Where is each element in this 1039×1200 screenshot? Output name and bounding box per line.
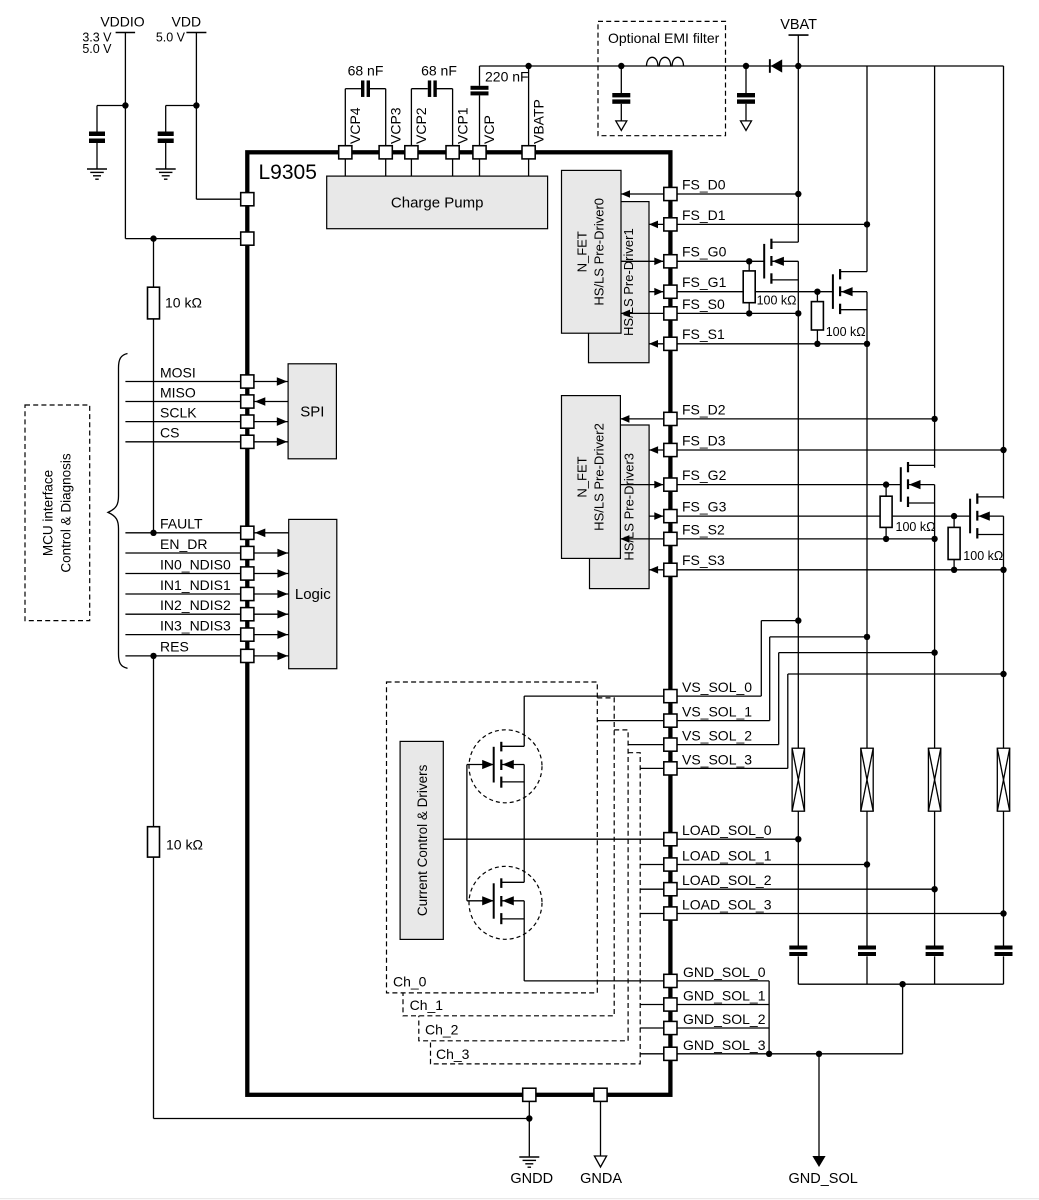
svg-text:VS_SOL_0: VS_SOL_0 — [682, 679, 752, 695]
svg-text:VBATP: VBATP — [530, 99, 546, 144]
svg-text:FS_D3: FS_D3 — [682, 432, 726, 448]
svg-text:HS/LS Pre-Driver0: HS/LS Pre-Driver0 — [592, 198, 607, 306]
svg-text:FS_D0: FS_D0 — [682, 176, 726, 192]
svg-text:5.0 V: 5.0 V — [82, 42, 112, 56]
svg-text:100 kΩ: 100 kΩ — [896, 520, 936, 534]
svg-text:FS_S1: FS_S1 — [682, 326, 725, 342]
svg-text:Ch_2: Ch_2 — [425, 1022, 459, 1038]
svg-text:HS/LS Pre-Driver1: HS/LS Pre-Driver1 — [621, 228, 636, 336]
svg-text:100 kΩ: 100 kΩ — [757, 294, 797, 308]
svg-text:CS: CS — [160, 425, 179, 441]
svg-text:FS_D2: FS_D2 — [682, 401, 726, 417]
svg-text:N_FET: N_FET — [575, 231, 590, 272]
svg-text:GND_SOL: GND_SOL — [789, 1171, 858, 1187]
svg-text:Ch_1: Ch_1 — [410, 997, 444, 1013]
svg-text:Current Control & Drivers: Current Control & Drivers — [415, 764, 430, 916]
svg-text:FS_G3: FS_G3 — [682, 499, 727, 515]
svg-text:VBAT: VBAT — [780, 17, 817, 33]
svg-text:Ch_0: Ch_0 — [393, 974, 427, 990]
svg-text:VCP1: VCP1 — [454, 107, 470, 144]
svg-text:VDD: VDD — [172, 14, 202, 30]
svg-text:68 nF: 68 nF — [348, 63, 384, 79]
svg-text:VS_SOL_2: VS_SOL_2 — [682, 728, 752, 744]
svg-text:MISO: MISO — [160, 384, 196, 400]
svg-text:220 nF: 220 nF — [485, 69, 529, 85]
svg-text:MCU interface: MCU interface — [40, 470, 55, 556]
svg-text:RES: RES — [160, 639, 189, 655]
svg-text:GND_SOL_3: GND_SOL_3 — [683, 1037, 766, 1053]
svg-text:HS/LS Pre-Driver2: HS/LS Pre-Driver2 — [592, 423, 607, 531]
svg-text:IN2_NDIS2: IN2_NDIS2 — [160, 597, 231, 613]
svg-text:10 kΩ: 10 kΩ — [165, 295, 202, 311]
svg-text:VCP3: VCP3 — [387, 107, 403, 144]
svg-text:L9305: L9305 — [259, 161, 317, 184]
svg-text:Control & Diagnosis: Control & Diagnosis — [59, 453, 74, 573]
svg-text:100 kΩ: 100 kΩ — [963, 549, 1003, 563]
svg-text:FS_G0: FS_G0 — [682, 244, 727, 260]
svg-text:GND_SOL_0: GND_SOL_0 — [683, 964, 766, 980]
svg-text:LOAD_SOL_2: LOAD_SOL_2 — [682, 872, 772, 888]
svg-text:GND_SOL_1: GND_SOL_1 — [683, 988, 766, 1004]
svg-text:5.0 V: 5.0 V — [156, 31, 186, 45]
svg-text:Logic: Logic — [295, 586, 331, 603]
svg-text:FS_G2: FS_G2 — [682, 467, 727, 483]
svg-text:HS/LS Pre-Driver3: HS/LS Pre-Driver3 — [622, 453, 637, 561]
svg-text:FS_G1: FS_G1 — [682, 274, 727, 290]
svg-text:VS_SOL_3: VS_SOL_3 — [682, 751, 752, 767]
svg-text:VCP2: VCP2 — [413, 107, 429, 144]
svg-text:Ch_3: Ch_3 — [436, 1046, 470, 1062]
svg-text:GNDA: GNDA — [580, 1171, 622, 1187]
svg-text:N_FET: N_FET — [575, 456, 590, 497]
svg-text:GNDD: GNDD — [510, 1171, 553, 1187]
svg-text:SPI: SPI — [300, 404, 324, 421]
svg-text:FS_D1: FS_D1 — [682, 207, 726, 223]
svg-text:68 nF: 68 nF — [421, 63, 457, 79]
svg-text:VCP4: VCP4 — [347, 107, 363, 144]
svg-text:FS_S2: FS_S2 — [682, 521, 725, 537]
svg-text:VCP: VCP — [481, 115, 497, 144]
svg-text:IN3_NDIS3: IN3_NDIS3 — [160, 617, 231, 633]
svg-text:GND_SOL_2: GND_SOL_2 — [683, 1011, 766, 1027]
svg-text:Optional EMI filter: Optional EMI filter — [608, 30, 720, 46]
svg-text:MOSI: MOSI — [160, 364, 196, 380]
svg-text:EN_DR: EN_DR — [160, 536, 207, 552]
svg-text:VDDIO: VDDIO — [100, 14, 144, 30]
svg-text:LOAD_SOL_1: LOAD_SOL_1 — [682, 848, 772, 864]
svg-text:10 kΩ: 10 kΩ — [166, 837, 203, 853]
svg-text:IN0_NDIS0: IN0_NDIS0 — [160, 556, 231, 572]
svg-text:FAULT: FAULT — [160, 516, 203, 532]
svg-text:FS_S3: FS_S3 — [682, 552, 725, 568]
svg-text:SCLK: SCLK — [160, 404, 197, 420]
svg-text:LOAD_SOL_0: LOAD_SOL_0 — [682, 822, 772, 838]
svg-text:FS_S0: FS_S0 — [682, 296, 725, 312]
svg-text:LOAD_SOL_3: LOAD_SOL_3 — [682, 897, 772, 913]
svg-text:100 kΩ: 100 kΩ — [826, 325, 866, 339]
svg-text:VS_SOL_1: VS_SOL_1 — [682, 704, 752, 720]
svg-text:IN1_NDIS1: IN1_NDIS1 — [160, 577, 231, 593]
svg-text:Charge Pump: Charge Pump — [391, 195, 484, 212]
